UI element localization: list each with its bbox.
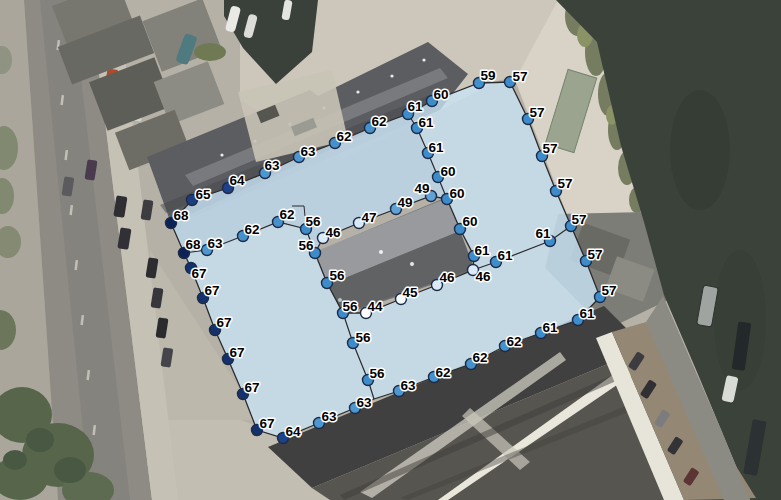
aerial-map-view: 6865646363626261605957575757575757616162…	[0, 0, 781, 500]
parcel-polygon[interactable]	[171, 82, 600, 438]
elevation-point-label: 63	[207, 236, 223, 251]
elevation-point-label: 62	[244, 222, 259, 237]
elevation-point-label: 63	[400, 378, 416, 393]
elevation-point-label: 57	[542, 141, 557, 156]
elevation-point-label: 61	[497, 248, 513, 263]
elevation-point-label: 59	[480, 68, 495, 83]
elevation-point-label: 62	[371, 114, 386, 129]
elevation-point-label: 60	[462, 214, 477, 229]
elevation-point-label: 56	[342, 299, 358, 314]
elevation-point-label: 57	[529, 105, 544, 120]
elevation-point-label: 61	[418, 115, 434, 130]
elevation-point-label: 56	[355, 330, 371, 345]
elevation-point-label: 61	[474, 243, 490, 258]
elevation-point-label: 60	[433, 87, 448, 102]
elevation-point-label: 61	[535, 226, 551, 241]
elevation-point-label: 61	[407, 99, 423, 114]
elevation-point-label: 61	[542, 320, 558, 335]
elevation-point-label: 68	[185, 237, 201, 252]
elevation-point-label: 56	[298, 238, 314, 253]
elevation-point-label: 56	[369, 366, 385, 381]
elevation-point-label: 62	[435, 365, 450, 380]
elevation-point-label: 49	[414, 181, 429, 196]
elevation-point-label: 67	[191, 266, 206, 281]
elevation-point-label: 46	[475, 269, 491, 284]
elevation-point-label: 57	[571, 212, 586, 227]
elevation-point-label: 67	[216, 315, 231, 330]
elevation-point-label: 57	[557, 176, 572, 191]
elevation-point-label: 63	[300, 144, 316, 159]
elevation-point-label: 49	[397, 195, 412, 210]
elevation-point-label: 67	[204, 283, 219, 298]
elevation-point-label: 62	[279, 207, 294, 222]
elevation-point-label: 63	[264, 158, 280, 173]
elevation-point-label: 67	[244, 380, 259, 395]
elevation-point-label: 46	[325, 225, 341, 240]
elevation-point-label: 62	[336, 129, 351, 144]
elevation-point-label: 67	[229, 345, 244, 360]
elevation-point-label: 63	[321, 409, 337, 424]
elevation-point-label: 60	[449, 186, 464, 201]
elevation-point-label: 45	[402, 285, 418, 300]
elevation-point-label: 57	[512, 69, 527, 84]
elevation-point-label: 63	[356, 395, 372, 410]
measurement-overlay: 6865646363626261605957575757575757616162…	[0, 0, 781, 500]
elevation-point-label: 44	[367, 299, 383, 314]
elevation-point-label: 68	[173, 208, 189, 223]
elevation-point-label: 57	[601, 283, 616, 298]
elevation-point-label: 47	[361, 210, 376, 225]
elevation-point-label: 56	[329, 268, 345, 283]
elevation-point-label: 65	[195, 187, 211, 202]
elevation-point-label: 56	[305, 214, 321, 229]
elevation-point-label: 64	[285, 424, 301, 439]
elevation-point-label: 61	[428, 140, 444, 155]
elevation-point-label: 62	[506, 334, 521, 349]
elevation-point-label: 60	[440, 164, 455, 179]
elevation-point-label: 61	[579, 306, 595, 321]
elevation-point-label: 64	[229, 173, 245, 188]
elevation-point-label: 46	[439, 270, 455, 285]
elevation-point-label: 62	[472, 350, 487, 365]
elevation-point-label: 57	[587, 247, 602, 262]
elevation-point-label: 67	[259, 416, 274, 431]
